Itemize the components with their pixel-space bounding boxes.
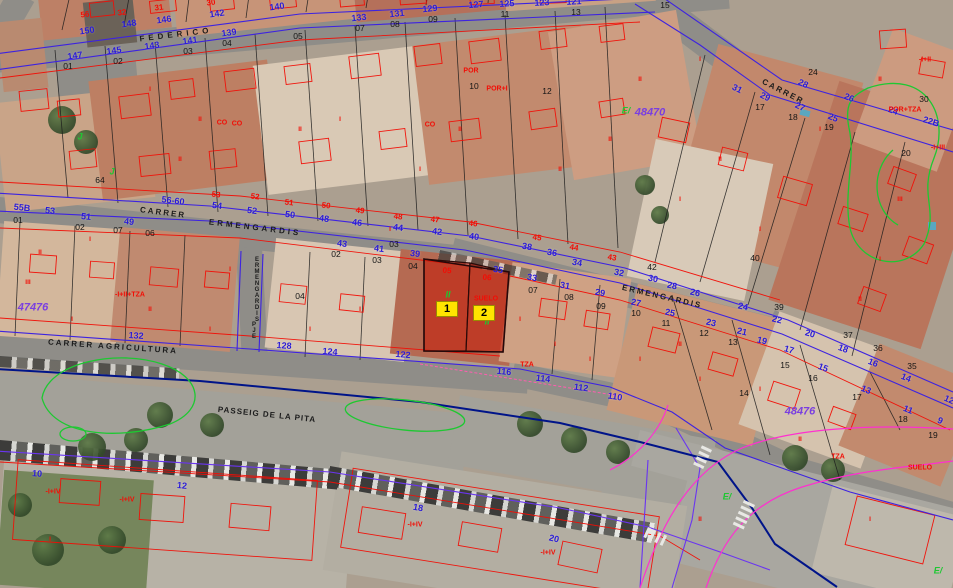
street-segment <box>236 247 268 360</box>
building-block <box>83 0 137 47</box>
building-block <box>253 45 438 195</box>
building-block <box>0 18 49 92</box>
tree <box>782 445 808 471</box>
tree <box>124 428 148 452</box>
tree <box>200 413 224 437</box>
building-block <box>499 262 632 378</box>
tree <box>651 206 669 224</box>
selection-badge-2[interactable]: 2 <box>473 305 495 321</box>
tree <box>74 130 98 154</box>
cadastral-map[interactable]: FEDERICOCARRERERMENGARDISERMENGARDISPJEE… <box>0 0 953 588</box>
building-block <box>110 227 240 352</box>
building-block <box>88 59 281 200</box>
tree <box>98 526 126 554</box>
swimming-pool <box>928 222 936 230</box>
tree <box>606 440 630 464</box>
tree <box>517 411 543 437</box>
tree <box>821 458 845 482</box>
tree <box>561 427 587 453</box>
selection-badge-1[interactable]: 1 <box>436 301 458 317</box>
building-block <box>0 470 154 588</box>
tree <box>8 493 32 517</box>
tree <box>48 106 76 134</box>
tree <box>78 433 106 461</box>
building-block <box>0 221 124 344</box>
aerial-backdrop <box>0 0 953 588</box>
tree <box>635 175 655 195</box>
tree <box>147 402 173 428</box>
tree <box>32 534 64 566</box>
